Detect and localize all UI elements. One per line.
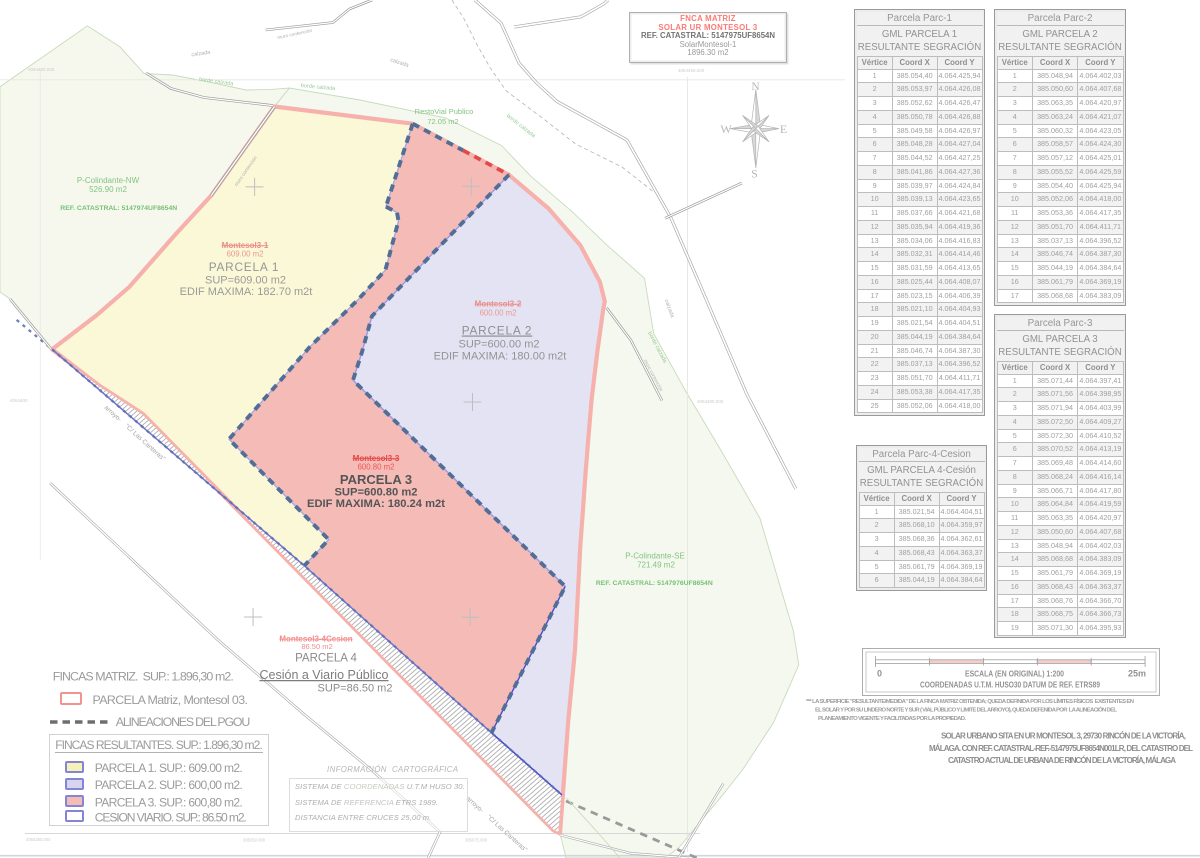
svg-text:25m: 25m	[1128, 669, 1146, 679]
svg-text:SOLAR URBANO SITA EN UR MONTES: SOLAR URBANO SITA EN UR MONTESOL 3, 2973…	[941, 732, 1186, 741]
svg-text:ALINEACIONES DEL PGOU: ALINEACIONES DEL PGOU	[116, 715, 251, 729]
svg-text:CATASTRO ACTUAL DE URBANA DE R: CATASTRO ACTUAL DE URBANA DE RINCÓN DE L…	[948, 756, 1176, 765]
svg-text:0: 0	[877, 669, 882, 679]
svg-text:ESCALA (EN ORIGINAL) 1:200: ESCALA (EN ORIGINAL) 1:200	[965, 670, 1064, 679]
svg-text:FINCAS MATRIZ. SUP.: 1.896,30: FINCAS MATRIZ. SUP.: 1.896,30 m2.	[53, 670, 234, 684]
svg-text:MÁLAGA. CON REF. CATASTRAL-REF: MÁLAGA. CON REF. CATASTRAL-REF.-5147975U…	[929, 744, 1193, 753]
svg-text:PLANEAMIENTO VIGENTE Y FACILIT: PLANEAMIENTO VIGENTE Y FACILITADAS POR L…	[818, 716, 966, 722]
svg-text:*** LA SUPERFICIE "RESULTANTE/: *** LA SUPERFICIE "RESULTANTE/MEDIDA" DE…	[806, 697, 1134, 705]
svg-text:COORDENADAS U.T.M. HUSO30 DATU: COORDENADAS U.T.M. HUSO30 DATUM DE REF. …	[920, 681, 1100, 690]
svg-text:PARCELA Matriz, Montesol 03.: PARCELA Matriz, Montesol 03.	[93, 693, 249, 707]
svg-text:EL SOLAR Y POR SU LINDERO NORT: EL SOLAR Y POR SU LINDERO NORTE Y SUR ( …	[815, 706, 1117, 714]
